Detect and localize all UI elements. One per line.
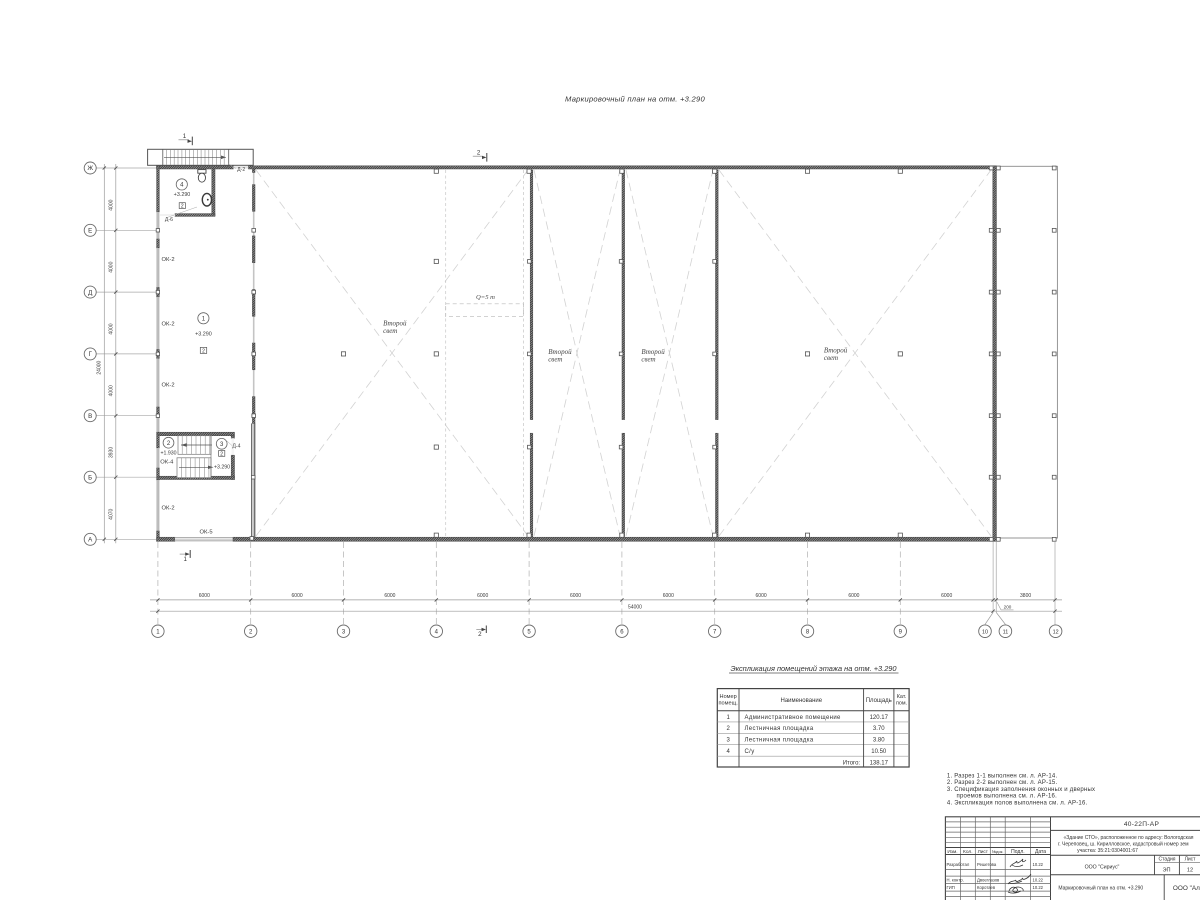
svg-text:В: В <box>88 413 92 420</box>
svg-text:ОК-2: ОК-2 <box>162 257 175 263</box>
svg-text:3800: 3800 <box>1020 593 1031 599</box>
svg-text:10.22: 10.22 <box>1033 878 1044 883</box>
svg-text:свет: свет <box>641 356 655 364</box>
svg-text:4000: 4000 <box>108 261 114 272</box>
svg-text:«Здание СТО», расположенное по: «Здание СТО», расположенное по адресу: В… <box>1064 835 1194 841</box>
svg-text:3930: 3930 <box>108 447 114 458</box>
svg-text:Административное помещение: Административное помещение <box>745 715 842 721</box>
svg-text:4070: 4070 <box>108 508 114 519</box>
svg-text:Экспликация помещений этажа на: Экспликация помещений этажа на отм. +3.2… <box>730 664 897 673</box>
svg-text:Двоеглазов: Двоеглазов <box>977 878 1000 883</box>
svg-text:проемов выполнена см. л. АР-16: проемов выполнена см. л. АР-16. <box>957 794 1058 800</box>
svg-text:Ж: Ж <box>87 165 93 172</box>
svg-text:2: 2 <box>220 451 223 457</box>
svg-text:24000: 24000 <box>97 360 103 374</box>
svg-text:1: 1 <box>183 556 187 563</box>
svg-text:Б: Б <box>88 474 92 481</box>
svg-text:ЭП: ЭП <box>1162 868 1170 874</box>
svg-text:свет: свет <box>383 327 397 335</box>
svg-text:+3.290: +3.290 <box>195 331 212 337</box>
svg-text:12: 12 <box>1187 868 1193 874</box>
svg-text:12: 12 <box>1053 629 1059 635</box>
svg-text:6000: 6000 <box>941 593 952 599</box>
svg-text:ООО "Сириус": ООО "Сириус" <box>1085 865 1120 871</box>
svg-text:1. Разрез 1-1 выполнен см. л.: 1. Разрез 1-1 выполнен см. л. АР-14. <box>947 773 1058 779</box>
svg-text:ОК-2: ОК-2 <box>162 322 175 328</box>
svg-text:Маркировочный план на отм. +3.: Маркировочный план на отм. +3.290 <box>1058 885 1143 892</box>
svg-text:Маркировочный план на отм. +3.: Маркировочный план на отм. +3.290 <box>565 95 705 104</box>
svg-text:10.22: 10.22 <box>1033 862 1044 867</box>
svg-text:3. Спецификация заполнения око: 3. Спецификация заполнения оконных и две… <box>947 787 1095 793</box>
svg-text:Лестничная площадка: Лестничная площадка <box>745 738 814 744</box>
svg-text:2: 2 <box>181 204 184 210</box>
svg-text:3.80: 3.80 <box>873 738 885 744</box>
svg-text:4000: 4000 <box>108 385 114 396</box>
svg-text:Д-6: Д-6 <box>165 217 173 223</box>
svg-text:Дата: Дата <box>1035 849 1046 855</box>
svg-text:+3.290: +3.290 <box>214 465 230 471</box>
svg-text:6000: 6000 <box>199 593 210 599</box>
svg-text:138.17: 138.17 <box>870 760 889 766</box>
svg-text:2: 2 <box>202 348 205 354</box>
svg-text:Q=5 m: Q=5 m <box>476 294 495 301</box>
svg-text:свет: свет <box>548 356 562 364</box>
svg-text:6000: 6000 <box>848 593 859 599</box>
svg-text:ООО "Альянс": ООО "Альянс" <box>1173 885 1200 892</box>
svg-text:Решетова: Решетова <box>977 862 997 867</box>
svg-text:пом.: пом. <box>896 701 907 707</box>
svg-text:11: 11 <box>1003 629 1009 635</box>
svg-text:Итого:: Итого: <box>843 760 861 766</box>
svg-text:6000: 6000 <box>292 593 303 599</box>
svg-text:Кол.: Кол. <box>963 849 973 855</box>
svg-text:6000: 6000 <box>663 593 674 599</box>
svg-text:+1.930: +1.930 <box>160 451 176 457</box>
svg-text:Д-2: Д-2 <box>237 167 245 173</box>
svg-text:Е: Е <box>88 228 92 235</box>
svg-text:Лист: Лист <box>1185 857 1197 863</box>
svg-text:№док.: №док. <box>992 849 1004 854</box>
svg-text:Н. контр.: Н. контр. <box>947 878 964 883</box>
svg-text:4000: 4000 <box>108 323 114 334</box>
svg-text:6000: 6000 <box>570 593 581 599</box>
svg-text:40-22П-АР: 40-22П-АР <box>1124 821 1160 828</box>
svg-text:10.50: 10.50 <box>871 749 887 755</box>
svg-text:свет: свет <box>824 354 838 362</box>
svg-text:Стадия: Стадия <box>1158 857 1175 863</box>
svg-text:ОК-2: ОК-2 <box>162 383 175 389</box>
svg-text:1: 1 <box>183 133 187 140</box>
svg-text:ГИП: ГИП <box>947 885 955 890</box>
svg-text:Площадь: Площадь <box>866 698 892 704</box>
svg-text:Лестничная площадка: Лестничная площадка <box>745 726 814 732</box>
svg-text:3.70: 3.70 <box>873 726 885 732</box>
svg-text:2. Разрез 2-2 выполнен см. л.: 2. Разрез 2-2 выполнен см. л. АР-15. <box>947 780 1058 786</box>
svg-text:Разработал: Разработал <box>947 862 970 867</box>
svg-text:2: 2 <box>478 631 482 638</box>
svg-text:Наименование: Наименование <box>781 698 823 704</box>
svg-text:ОК-2: ОК-2 <box>162 506 175 512</box>
svg-text:С/у: С/у <box>745 749 755 755</box>
svg-text:ОК-5: ОК-5 <box>200 530 213 536</box>
svg-text:Коротаев: Коротаев <box>977 885 996 890</box>
svg-text:+3.290: +3.290 <box>174 192 191 198</box>
svg-text:10: 10 <box>982 629 988 635</box>
svg-text:помещ.: помещ. <box>719 701 739 707</box>
svg-text:6000: 6000 <box>384 593 395 599</box>
svg-text:4000: 4000 <box>108 199 114 210</box>
svg-text:участка: 35:21:0304001:67: участка: 35:21:0304001:67 <box>1077 848 1138 854</box>
svg-text:Подл.: Подл. <box>1011 849 1025 855</box>
svg-text:Лист: Лист <box>978 849 989 855</box>
svg-text:Номер: Номер <box>720 694 737 700</box>
svg-text:2: 2 <box>477 150 481 157</box>
svg-text:54000: 54000 <box>628 605 642 611</box>
svg-text:120.17: 120.17 <box>870 715 889 721</box>
svg-text:Д-4: Д-4 <box>232 444 240 450</box>
svg-text:ОК-4: ОК-4 <box>160 459 174 465</box>
svg-text:Кат.: Кат. <box>897 694 906 700</box>
svg-text:Изм.: Изм. <box>947 849 957 855</box>
svg-text:6000: 6000 <box>477 593 488 599</box>
svg-text:6000: 6000 <box>756 593 767 599</box>
svg-text:г. Череповец, ш. Кирилловское,: г. Череповец, ш. Кирилловское, кадастров… <box>1058 841 1189 848</box>
svg-text:4. Экспликация полов выполнена: 4. Экспликация полов выполнена см. л. АР… <box>947 800 1088 806</box>
svg-text:200: 200 <box>1004 605 1012 610</box>
svg-text:10.22: 10.22 <box>1033 885 1044 890</box>
